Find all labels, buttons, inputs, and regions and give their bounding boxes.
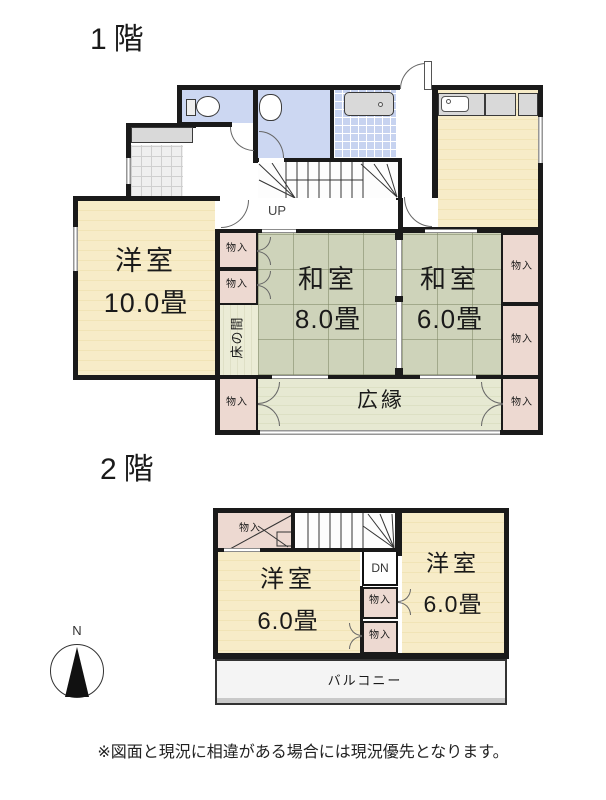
door-arc [404, 197, 432, 227]
wall-segment [73, 196, 78, 380]
kitchen-sink [441, 96, 469, 112]
door-gap [259, 158, 284, 163]
shoe-cabinet [131, 127, 193, 143]
wall-segment [73, 375, 220, 380]
sliding-door-marker [272, 375, 328, 379]
sliding-partition [396, 235, 402, 373]
kitchen-faucet [446, 99, 451, 104]
western-room-2f-right-size: 6.0畳 [393, 593, 513, 616]
closet-label: 物入 [230, 524, 270, 534]
wall-segment [330, 85, 334, 162]
wall-segment [395, 296, 403, 302]
wall-segment [432, 85, 543, 90]
bathtub-drain [378, 102, 383, 107]
sliding-door-marker [425, 229, 477, 233]
window-marker [73, 227, 78, 271]
closet-label: 物入 [362, 596, 398, 606]
wall-segment [291, 513, 295, 550]
wall-segment [177, 85, 400, 90]
floor2-title: 2階 [100, 455, 210, 485]
stairs-dn-label: DN [363, 562, 397, 574]
floorplan-canvas: 1階 [0, 0, 606, 800]
wall-segment [395, 368, 403, 375]
closet-label: 物入 [219, 244, 255, 254]
wall-segment [395, 233, 403, 240]
wall-segment [213, 508, 218, 658]
bathtub [344, 92, 394, 116]
window-marker [260, 430, 500, 435]
wall-segment [73, 196, 220, 201]
sliding-door-marker [224, 548, 260, 552]
closet-label: 物入 [504, 335, 540, 345]
washbasin [259, 94, 282, 121]
door-gap [215, 201, 220, 229]
western-room-2f-right-floor [402, 513, 504, 654]
veranda-label: 広縁 [321, 390, 441, 411]
western-room-2f-right-name: 洋室 [397, 552, 509, 575]
japanese-room-6-size: 6.0畳 [392, 306, 508, 332]
wall-segment [215, 229, 258, 233]
floor1-title: 1階 [90, 25, 200, 55]
western-room-2f-left-size: 6.0畳 [228, 610, 348, 634]
western-room-10-size: 10.0畳 [81, 290, 211, 317]
entrance-tile-floor [131, 145, 183, 197]
wall-segment [213, 508, 509, 513]
tokonoma-label: 床の間 [231, 308, 244, 368]
closet-label: 物入 [362, 631, 398, 641]
sliding-door-marker [420, 375, 476, 379]
door-leaf [424, 61, 432, 90]
closet-label: 物入 [219, 398, 255, 408]
japanese-room-8-name: 和室 [273, 266, 383, 292]
closet-label: 物入 [504, 398, 540, 408]
japanese-room-8-size: 8.0畳 [270, 306, 386, 332]
wall-segment [504, 508, 509, 658]
wall-segment [395, 508, 402, 556]
staircase-lines [258, 162, 398, 198]
staircase-up [258, 162, 398, 198]
toilet-tank [186, 99, 196, 116]
stairs-up-label: UP [256, 204, 298, 217]
kitchen-counter [518, 93, 538, 116]
western-room-10-name: 洋室 [86, 248, 206, 275]
japanese-room-6-name: 和室 [395, 266, 505, 292]
window-marker [126, 158, 131, 184]
door-arc [400, 63, 426, 89]
closet-label: 物入 [219, 280, 255, 290]
disclaimer-text: ※図面と現況に相違がある場合には現況優先となります。 [45, 745, 561, 761]
compass-north-label: N [69, 624, 85, 637]
sliding-door-marker [262, 229, 296, 233]
balcony-label: バルコニー [315, 674, 415, 687]
wall-segment [398, 198, 403, 233]
balcony-edge [217, 698, 505, 703]
toilet-bowl [196, 96, 220, 117]
door-arc [221, 200, 249, 228]
wall-segment [215, 375, 543, 379]
window-marker [538, 117, 543, 163]
kitchen-counter [485, 93, 516, 116]
door-arc [230, 127, 254, 151]
western-room-2f-left-name: 洋室 [232, 568, 344, 592]
closet-label: 物入 [504, 262, 540, 272]
